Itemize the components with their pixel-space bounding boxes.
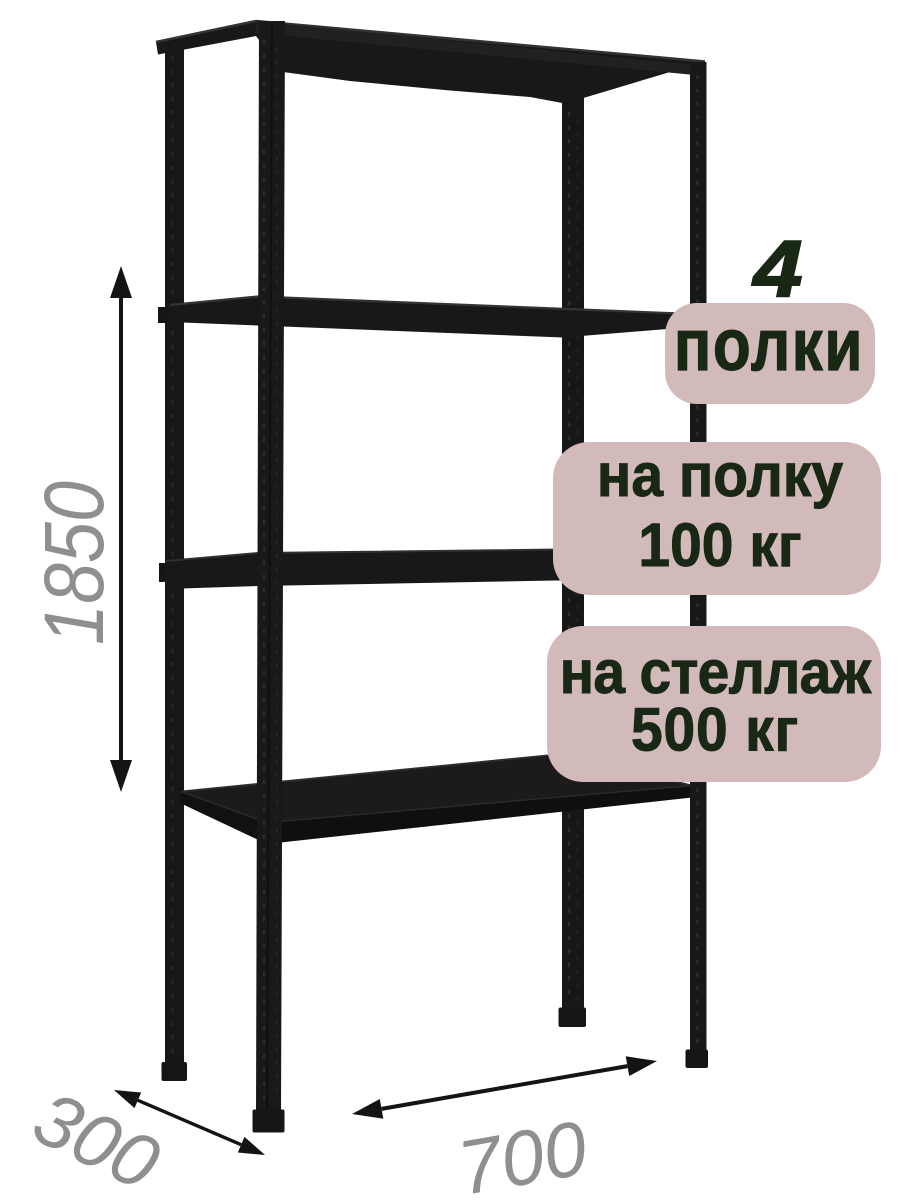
svg-text:500 кг: 500 кг — [631, 694, 799, 764]
svg-text:на полку: на полку — [597, 440, 843, 510]
svg-text:4: 4 — [751, 224, 802, 313]
svg-text:полки: полки — [674, 305, 864, 386]
svg-text:100 кг: 100 кг — [638, 510, 801, 580]
svg-text:1850: 1850 — [27, 481, 121, 645]
